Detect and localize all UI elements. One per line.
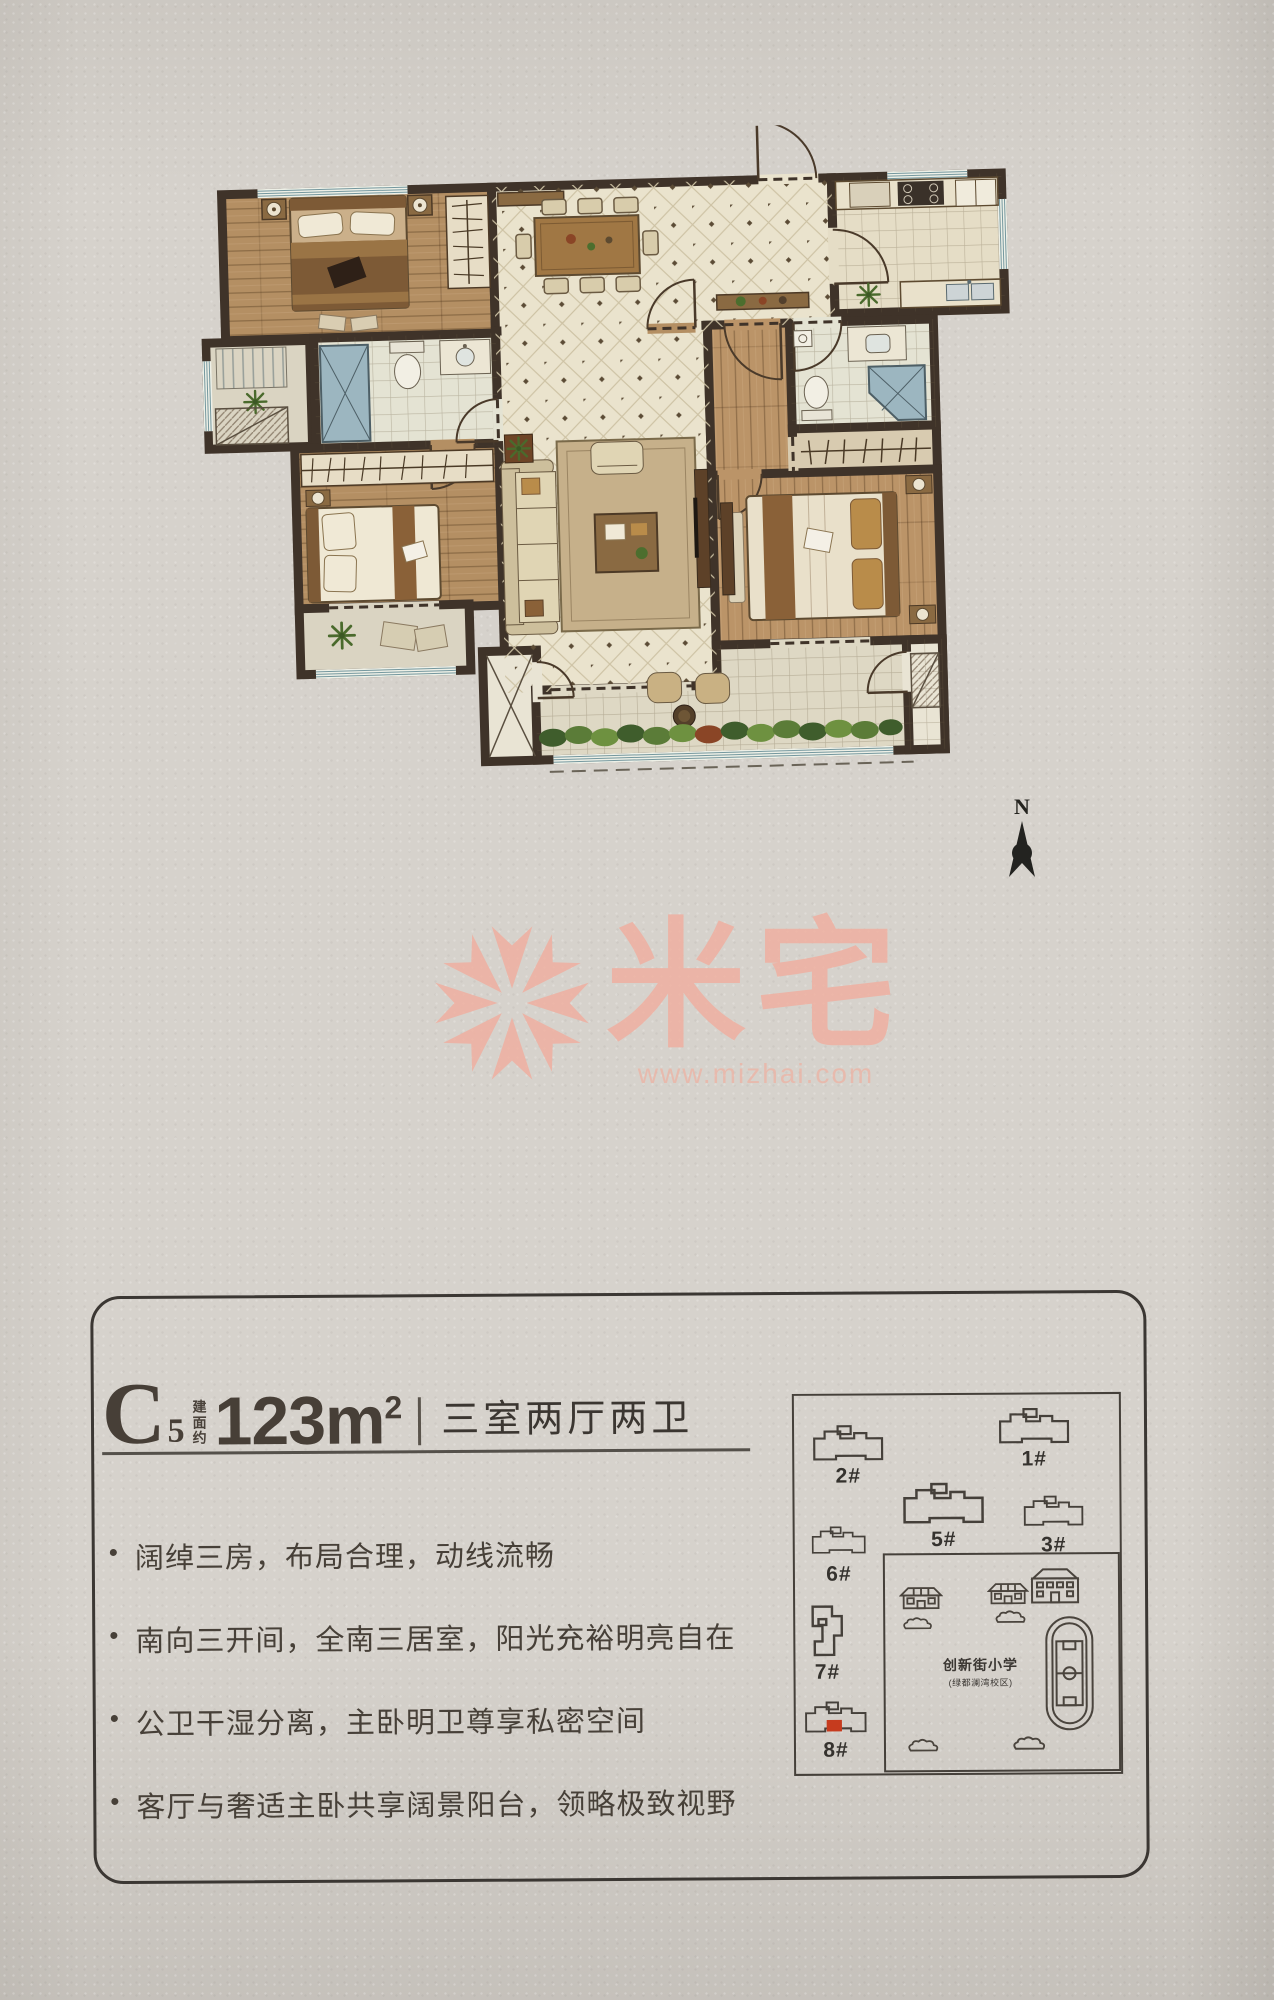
building-6: 6# xyxy=(811,1519,867,1586)
area-label: 建面约 xyxy=(192,1400,208,1447)
feature-item: 公卫干湿分离，主卧明卫尊享私密空间 xyxy=(110,1697,736,1737)
site-plan: 2# 1# 5# 3# 6# 7# xyxy=(792,1392,1123,1776)
building-label: 6# xyxy=(826,1563,852,1587)
corridor xyxy=(707,323,795,477)
school-name: 创新街小学 xyxy=(915,1654,1045,1675)
feature-item: 阔绰三房，布局合理，动线流畅 xyxy=(109,1531,735,1571)
highlighted-unit-marker xyxy=(827,1720,842,1732)
school-name-block: 创新街小学 (绿都澜湾校区) xyxy=(915,1654,1045,1689)
cloud-icon xyxy=(906,1737,942,1753)
brochure-page: N 米宅 www.mizhai.com C 5 建面约 123m xyxy=(0,0,1274,2000)
compass-north-label: N xyxy=(1000,796,1044,818)
feature-item: 客厅与奢适主卧共享阔景阳台，领略极致视野 xyxy=(110,1780,736,1820)
building-label: 2# xyxy=(836,1465,862,1489)
compass-needle-icon xyxy=(1004,819,1040,883)
watermark-flower-icon xyxy=(428,919,596,1087)
floor-plan-drawing xyxy=(196,119,1026,793)
sports-track-icon xyxy=(1043,1614,1096,1732)
cloud-icon xyxy=(993,1609,1029,1625)
unit-info-card: C 5 建面约 123m 2 三室两厅两卫 阔绰三房，布局合理，动线流畅 南向三… xyxy=(90,1290,1150,1884)
cloud-icon xyxy=(1010,1734,1050,1751)
title-divider xyxy=(418,1397,421,1445)
building-label: 5# xyxy=(931,1528,957,1552)
watermark: 米宅 www.mizhai.com xyxy=(428,916,906,1090)
school-building-icon xyxy=(1029,1566,1081,1606)
watermark-brand: 米宅 xyxy=(606,916,906,1056)
feature-item: 南向三开间，全南三居室，阳光充裕明亮自在 xyxy=(109,1614,735,1654)
floor-plan xyxy=(196,119,1026,793)
cloud-icon xyxy=(901,1615,935,1631)
unit-number: 5 xyxy=(168,1415,185,1449)
building-label: 1# xyxy=(1021,1447,1047,1471)
watermark-url: www.mizhai.com xyxy=(606,1058,906,1090)
building-label: 7# xyxy=(815,1661,841,1685)
feature-list: 阔绰三房，布局合理，动线流畅 南向三开间，全南三居室，阳光充裕明亮自在 公卫干湿… xyxy=(109,1531,737,1867)
building-2: 2# xyxy=(810,1423,886,1488)
house-icon xyxy=(899,1585,943,1611)
building-1: 1# xyxy=(995,1406,1073,1471)
unit-title: C 5 建面约 123m 2 三室两厅两卫 xyxy=(102,1376,694,1452)
area-exponent: 2 xyxy=(384,1391,402,1423)
building-7: 7# xyxy=(807,1602,848,1685)
area-value: 123m xyxy=(214,1394,384,1451)
building-label: 8# xyxy=(823,1739,849,1763)
school-campus: (绿都澜湾校区) xyxy=(916,1675,1046,1689)
school-area: 创新街小学 (绿都澜湾校区) xyxy=(883,1552,1121,1772)
living-room-furniture xyxy=(500,429,712,635)
building-5: 5# xyxy=(893,1481,993,1553)
compass: N xyxy=(1000,796,1044,883)
layout-text: 三室两厅两卫 xyxy=(441,1387,693,1444)
unit-letter: C xyxy=(102,1379,166,1452)
building-8-highlighted: 8# xyxy=(804,1697,868,1762)
house-icon xyxy=(987,1581,1029,1607)
building-3: 3# xyxy=(1022,1490,1084,1557)
